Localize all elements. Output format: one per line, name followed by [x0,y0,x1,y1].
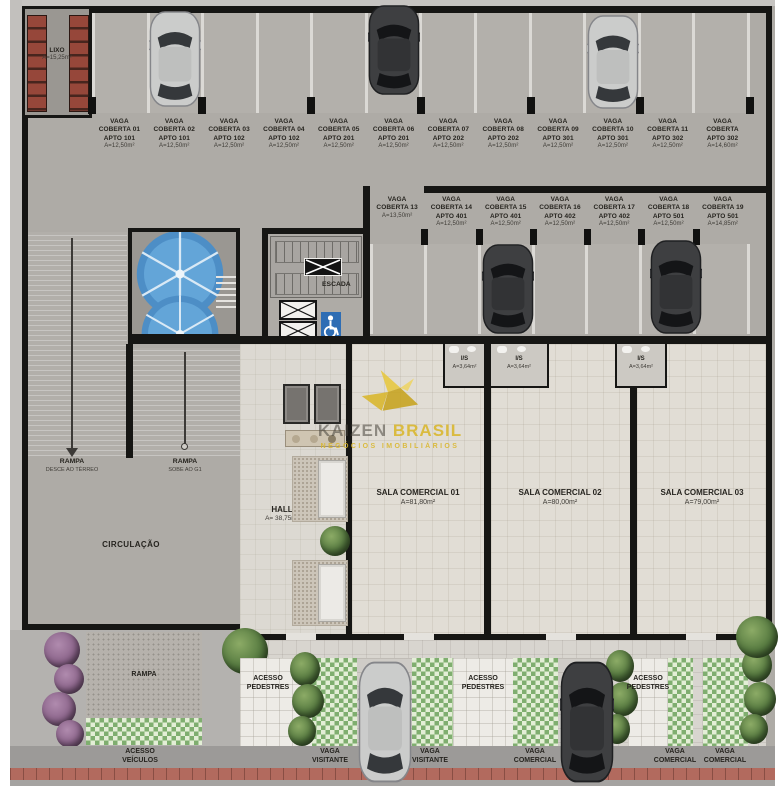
trash-room-name: LIXO [39,47,75,55]
parking-label-06: VAGACOBERTA 06APTO 201A=12,50m² [366,118,421,151]
parking-label-10: VAGACOBERTA 10APTO 301A=12,50m² [585,118,640,151]
core-wall-top [262,228,370,234]
bathroom-2: I/SA=3,64m² [491,344,549,388]
parking-label-16: VAGACOBERTA 16APTO 402A=12,50m² [533,196,587,229]
car-dark-row2-1 [482,243,534,335]
parking-bay [529,13,584,113]
core-wall-left [262,228,268,338]
ramp-up-lane [133,348,240,456]
parking-bay [638,13,693,113]
water-tank-room [128,228,240,338]
column [746,97,754,114]
ramp-down-lane [28,232,127,456]
toilet-icon [449,346,459,353]
toilet-icon [622,346,632,353]
parking-label-13: VAGACOBERTA 13A=13,50m² [370,196,424,229]
sink-icon [467,346,476,352]
street-ramp-label: RAMPA [104,670,184,679]
parking-label-07: VAGACOBERTA 07APTO 202A=12,50m² [421,118,476,151]
sink-icon [641,346,650,352]
parking-bay [585,244,639,334]
trash-room-area: A=15,25m² [39,55,75,63]
hedge-icon [744,682,776,716]
watermark-bird-icon [353,368,427,416]
parking-label-11: VAGACOBERTA 11APTO 302A=12,50m² [640,118,695,151]
car-dark-commercial [560,660,614,784]
parking-label-03: VAGACOBERTA 03APTO 102A=12,50m² [202,118,257,151]
ramp-divider-wall [126,344,133,458]
parking-label-14: VAGACOBERTA 14APTO 401A=12,50m² [424,196,478,229]
column [638,229,645,245]
sala-1-label: SALA COMERCIAL 01A=81,80m² [358,488,478,507]
sala-3-label: SALA COMERCIAL 03A=79,00m² [642,488,762,507]
parking-label-05: VAGACOBERTA 05APTO 201A=12,50m² [311,118,366,151]
trash-room: LIXO A=15,25m² [22,6,92,118]
pedestrian-walkway-2 [453,658,513,746]
parking-label-18: VAGACOBERTA 18APTO 501A=12,50m² [641,196,695,229]
tree-icon [736,616,778,658]
parking-bay [201,13,256,113]
parking-bay [424,244,478,334]
row2-back-wall [424,186,772,193]
ladder-hatch [216,276,238,310]
shrub-icon [56,720,84,748]
car-silver-visitor [358,660,412,784]
parking-bay [474,13,529,113]
stairs-label: ESCADA [322,281,370,290]
plant-icon [320,526,350,556]
ramp-up-label: RAMPA SOBE AO G1 [145,458,225,474]
core-wall-right [363,186,370,344]
ramp-down-line [71,238,73,448]
column [421,229,428,245]
parking-bay [95,13,147,113]
pedestrian-access-label-3: ACESSOPEDESTRES [616,674,680,692]
parking-label-01: VAGACOBERTA 01APTO 101A=12,50m² [92,118,147,151]
visitor-space-3 [412,658,453,746]
parking-label-15: VAGACOBERTA 15APTO 401A=12,50m² [479,196,533,229]
column [307,97,315,114]
shrub-icon [54,664,84,694]
storefront-walkway [240,640,766,658]
parking-label-08: VAGACOBERTA 08APTO 202A=12,50m² [476,118,531,151]
sink-icon [517,346,526,352]
hedge-icon [288,716,316,746]
ramp-line-end-icon [181,443,188,450]
commercial-space-1 [513,658,558,746]
sala-2-label: SALA COMERCIAL 02A=80,00m² [500,488,620,507]
car-dark-row2-2 [650,239,702,335]
pedestrian-access-label-1: ACESSOPEDESTRES [236,674,300,692]
ramp-grass-strip [86,718,202,745]
column [584,229,591,245]
parking-bay [373,244,424,334]
column [88,97,96,114]
water-tank-icon [140,294,220,338]
commercial-space-3 [668,658,693,746]
elevator-1 [279,300,317,320]
parking-label-19: VAGACOBERTA 19APTO 501A=14,85m² [696,196,750,229]
column [527,97,535,114]
column [417,97,425,114]
garage-south-wall [128,336,766,344]
parking-label-04: VAGACOBERTA 04APTO 102A=12,50m² [256,118,311,151]
trash-room-label: LIXO A=15,25m² [39,47,75,63]
east-wall [766,6,772,640]
watermark-brand: KAIZEN BRASIL [295,421,485,441]
parking-bay [692,13,747,113]
parking-bay [532,244,586,334]
circulation-label: CIRCULAÇÃO [81,540,181,550]
stair-sign [304,258,342,276]
ramp-arrow-icon [66,448,78,457]
toilet-icon [497,346,507,353]
ramp-up-line [184,352,186,444]
parking-row1-labels: VAGACOBERTA 01APTO 101A=12,50m² VAGACOBE… [92,118,750,151]
car-silver-top-1 [149,10,201,108]
parking-label-12: VAGACOBERTAAPTO 302A=14,60m² [695,118,750,151]
garage-floor-plan: LIXO A=15,25m² VAGACOBERTA 01APTO 101A=1… [0,0,779,800]
vehicle-access-label: ACESSOVEÍCULOS [105,747,175,765]
parking-bay [256,13,311,113]
parking-bay [419,13,474,113]
hedge-icon [740,714,768,744]
watermark-tagline: NEGÓCIOS IMOBILIÁRIOS [295,443,485,450]
commercial-space-label-4: VAGACOMERCIAL [690,747,760,765]
car-dark-top [368,4,420,96]
parking-label-09: VAGACOBERTA 09APTO 301A=12,50m² [531,118,586,151]
wall-sala1-sala2 [484,344,491,634]
shrub-icon [44,632,80,668]
watermark: KAIZEN BRASIL NEGÓCIOS IMOBILIÁRIOS [295,368,485,450]
car-silver-top-2 [587,14,639,110]
pedestrian-access-label-2: ACESSOPEDESTRES [451,674,515,692]
trash-bins-left [27,15,47,112]
parking-label-02: VAGACOBERTA 02APTO 101A=12,50m² [147,118,202,151]
sofa [318,564,346,622]
parking-row2-labels: VAGACOBERTA 13A=13,50m² VAGACOBERTA 14AP… [370,196,750,229]
sofa [318,460,346,518]
bathroom-3: I/SA=3,64m² [615,344,667,388]
ramp-down-label: RAMPA DESCE AO TÉRREO [32,458,112,474]
parking-bay [310,13,365,113]
trash-bins-right [69,15,89,112]
parking-label-17: VAGACOBERTA 17APTO 402A=12,50m² [587,196,641,229]
